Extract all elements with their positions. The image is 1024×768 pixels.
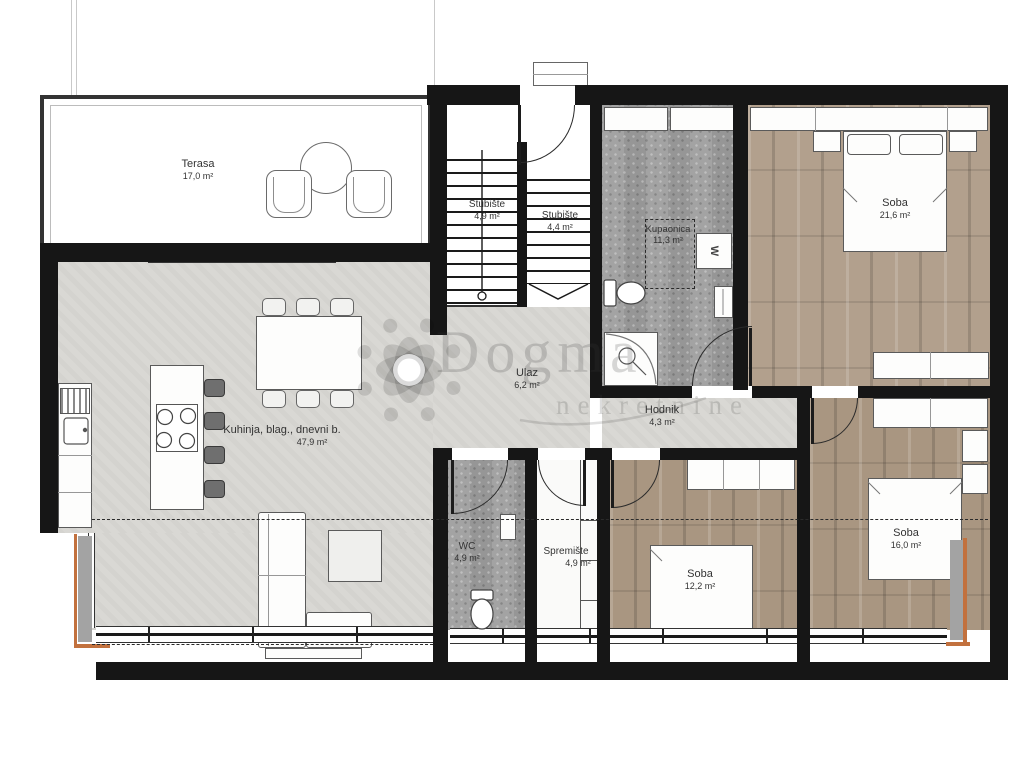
room-name: Stubište xyxy=(450,199,524,211)
railing-west xyxy=(74,534,77,646)
wall xyxy=(430,85,447,335)
watermark-brand: Dogma xyxy=(436,318,643,387)
window-storage-south xyxy=(537,628,597,644)
room-name: Kupaonica xyxy=(627,224,709,235)
watermark-subtitle: nekretnine xyxy=(556,390,750,421)
room-name: Soba xyxy=(850,197,940,210)
wall xyxy=(40,243,58,533)
railing-east xyxy=(963,538,967,646)
terrace-chair xyxy=(266,170,312,218)
balcony-stair-band xyxy=(950,540,963,640)
counter-divider xyxy=(58,492,92,493)
wall xyxy=(858,386,990,398)
wall xyxy=(660,448,797,460)
wall xyxy=(40,243,447,262)
terrace-chair xyxy=(346,170,392,218)
room-label-soba-2: Soba 12,2 m² xyxy=(655,568,745,592)
roof-dashed-line-2 xyxy=(92,644,433,645)
floor-living-room xyxy=(58,262,433,533)
wall xyxy=(508,448,538,460)
wardrobe-divider xyxy=(930,352,931,379)
room-name: Soba xyxy=(861,527,951,540)
sofa-cushion-line xyxy=(258,575,306,576)
bathroom-door-leaf xyxy=(749,328,752,386)
bathroom-radiator xyxy=(714,286,733,318)
room-label-soba-1: Soba 21,6 m² xyxy=(850,197,940,221)
nightstand xyxy=(813,131,841,152)
wall xyxy=(96,662,1008,680)
dining-chair xyxy=(262,298,286,316)
room-label-spremiste: Spremište 4,9 m² xyxy=(523,546,609,569)
bedroom2-closet xyxy=(687,458,795,490)
closet-divider xyxy=(759,458,760,490)
bathroom-cabinet xyxy=(670,107,742,131)
stair-landing-line xyxy=(447,305,517,307)
room-area: 12,2 m² xyxy=(655,581,745,592)
room-area: 4,9 m² xyxy=(450,211,524,222)
window-living-south xyxy=(96,626,433,643)
construction-line xyxy=(76,0,77,95)
pillow xyxy=(847,134,891,155)
bar-stool xyxy=(204,446,225,464)
room-area: 4,9 m² xyxy=(427,553,507,564)
entry-landing-step xyxy=(533,74,588,75)
staircase-1-steps xyxy=(447,148,517,307)
shelf-line xyxy=(580,600,597,601)
wall xyxy=(575,85,1008,105)
coffee-table xyxy=(328,530,382,582)
bar-stool xyxy=(204,379,225,397)
room-area: 47,9 m² xyxy=(202,437,362,448)
railing-east-foot xyxy=(946,642,970,646)
dining-chair xyxy=(330,390,354,408)
bar-stool xyxy=(204,480,225,498)
room-label-stubiste-1: Stubište 4,9 m² xyxy=(450,199,524,222)
pillow xyxy=(899,134,943,155)
room-name: WC xyxy=(427,541,507,553)
dining-chair xyxy=(296,298,320,316)
dining-table xyxy=(256,316,362,390)
room-label-soba-3: Soba 16,0 m² xyxy=(861,527,951,551)
bedroom3-door-leaf xyxy=(811,398,814,444)
entry-door-leaf xyxy=(518,105,521,165)
room-area: 17,0 m² xyxy=(153,171,243,182)
room-name: Spremište xyxy=(523,546,609,558)
dining-chair xyxy=(262,390,286,408)
wc-sink xyxy=(500,514,516,540)
dining-chair xyxy=(330,298,354,316)
closet-divider xyxy=(723,458,724,490)
bedroom1-closet xyxy=(750,107,988,131)
counter-divider xyxy=(58,455,92,456)
room-name: Stubište xyxy=(523,210,597,222)
nightstand xyxy=(949,131,977,152)
floor-plan: W xyxy=(0,0,1024,768)
bedroom3-unit xyxy=(962,464,988,494)
washing-machine-label: W xyxy=(708,246,720,256)
bathroom-cabinet xyxy=(604,107,668,131)
balcony-stair-band xyxy=(78,536,92,642)
room-label-stubiste-2: Stubište 4,4 m² xyxy=(523,210,597,233)
construction-line xyxy=(434,0,435,85)
closet-divider xyxy=(815,107,816,131)
dining-chair xyxy=(296,390,320,408)
shelf-line xyxy=(580,520,597,521)
room-area: 11,3 m² xyxy=(627,235,709,246)
cooktop xyxy=(156,404,198,452)
room-label-kupaonica: Kupaonica 11,3 m² xyxy=(627,224,709,246)
room-label-kuhinja: Kuhinja, blag., dnevni b. 47,9 m² xyxy=(202,424,362,448)
room-area: 16,0 m² xyxy=(861,540,951,551)
room-label-terasa: Terasa 17,0 m² xyxy=(153,158,243,182)
sideboard xyxy=(265,648,362,659)
room-label-wc: WC 4,9 m² xyxy=(427,541,507,564)
room-name: Terasa xyxy=(153,158,243,171)
closet-divider xyxy=(930,398,931,428)
wall xyxy=(797,390,810,662)
wall xyxy=(990,85,1008,680)
room-name: Soba xyxy=(655,568,745,581)
window-wc-south xyxy=(450,628,525,644)
window-bedroom3-south xyxy=(810,628,947,644)
room-name: Kuhinja, blag., dnevni b. xyxy=(202,424,362,437)
storage-door-leaf xyxy=(583,460,586,506)
wc-door-leaf xyxy=(451,460,454,514)
window-bedroom2-south xyxy=(610,628,797,644)
construction-line xyxy=(71,0,72,95)
entry-door-arc xyxy=(520,105,575,163)
room-area: 4,9 m² xyxy=(523,558,609,569)
kitchen-appliance xyxy=(60,388,90,414)
closet-divider xyxy=(947,107,948,131)
bedroom2-door-leaf xyxy=(611,460,614,508)
room-area: 4,4 m² xyxy=(523,222,597,233)
roof-dashed-line xyxy=(92,519,988,520)
room-area: 21,6 m² xyxy=(850,210,940,221)
bedroom1-wardrobe xyxy=(873,352,989,379)
wall xyxy=(433,448,452,460)
bedroom3-unit xyxy=(962,430,988,462)
